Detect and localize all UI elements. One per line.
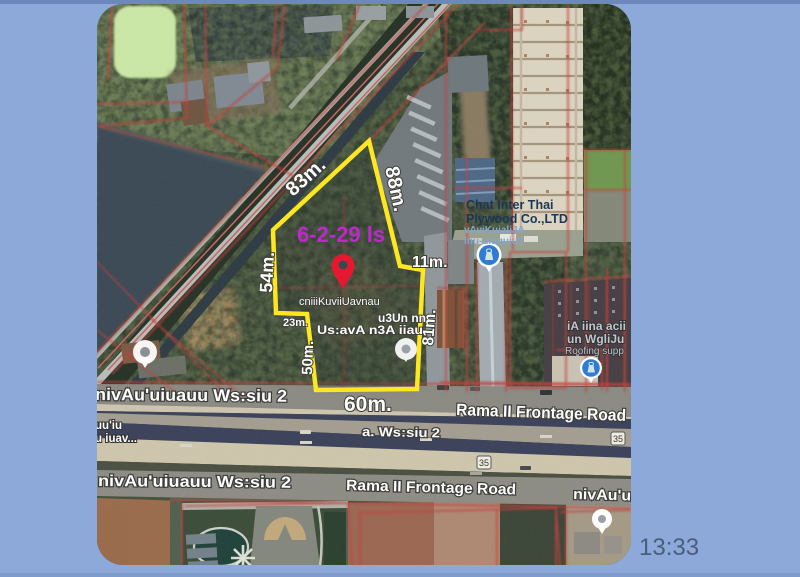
svg-text:13:33: 13:33 xyxy=(639,534,699,561)
